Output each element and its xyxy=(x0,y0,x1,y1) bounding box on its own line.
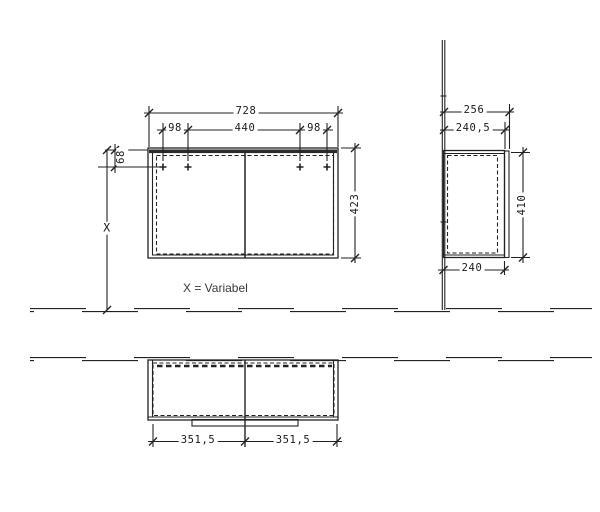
mounting-point-icon xyxy=(324,164,331,171)
variable-note: X = Variabel xyxy=(183,281,248,295)
mounting-point-icon xyxy=(297,164,304,171)
side-dim-depth-total-label: 256 xyxy=(462,105,487,117)
front-dim-offset-left-label: 98 xyxy=(166,123,184,135)
mounting-point-icon xyxy=(185,164,192,171)
side-hidden-outline xyxy=(448,156,498,254)
bottom-view xyxy=(30,358,592,447)
bottom-dim-door-width-right-label: 351,5 xyxy=(274,435,313,447)
front-dim-width-total-label: 728 xyxy=(234,106,259,118)
front-dim-height-label: 423 xyxy=(350,192,362,217)
bottom-dim-door-width-left-label: 351,5 xyxy=(179,435,218,447)
front-top-panel-edge xyxy=(149,150,337,154)
side-door-panel xyxy=(505,151,510,258)
side-dim-door-height-label: 410 xyxy=(517,193,529,218)
front-dim-mount-offset-label: 68 xyxy=(116,148,128,166)
bottom-hidden-outline xyxy=(153,363,334,416)
front-dim-span-center-label: 440 xyxy=(233,123,258,135)
bottom-cabinet-outline xyxy=(148,360,338,420)
front-dim-variable-label: X xyxy=(101,222,113,235)
front-dim-offset-right-label: 98 xyxy=(305,123,323,135)
side-dim-depth-front-label: 240,5 xyxy=(454,123,493,135)
side-dim-body-depth-label: 240 xyxy=(460,263,485,275)
side-cabinet-outline xyxy=(444,151,505,258)
floor-line xyxy=(30,309,592,312)
technical-drawing: 728 98 440 98 68 X 423 256 240,5 410 240… xyxy=(0,0,600,512)
front-cabinet-outline xyxy=(148,148,338,258)
mounting-point-icon xyxy=(160,164,167,171)
